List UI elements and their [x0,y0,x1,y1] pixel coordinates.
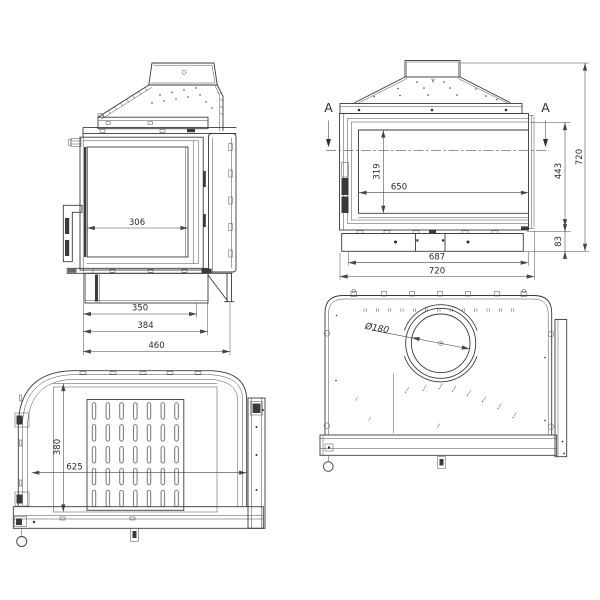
dim-label-83: 83 [554,236,564,247]
front-dim-83: 83 [554,225,565,258]
dim-label-384: 384 [137,321,153,331]
front-dim-720-right: 720 [575,63,585,251]
side-dim-306: 306 [87,218,188,228]
side-hood [98,85,223,131]
front-dim-319: 319 [373,130,384,213]
rear-view: Ø180 [320,289,567,471]
dim-label-460: 460 [148,341,164,351]
dim-label-306: 306 [129,218,145,228]
front-dim-650: 650 [359,183,529,193]
side-base [67,268,234,303]
dim-label-687: 687 [429,253,445,263]
front-dim-443: 443 [554,123,565,227]
dim-label-319: 319 [373,163,383,179]
front-dim-720-bottom: 720 [340,267,534,277]
dim-label-350: 350 [132,304,148,314]
plan-view: 380 625 [13,371,265,547]
rear-base-band [320,435,557,468]
dim-label-443: 443 [554,163,564,179]
plan-dim-380: 380 [53,384,63,513]
side-dim-384: 384 [83,321,207,332]
rear-side-bolts [324,331,554,430]
front-plinth [342,234,524,252]
front-flue-collar [405,61,460,84]
side-dim-350: 350 [83,304,196,315]
rear-door-knob [324,455,334,471]
plan-door-knob [17,528,27,546]
section-label-a-left: A [324,100,333,115]
side-hinge-pin [69,138,82,146]
front-dim-687: 687 [348,253,528,263]
side-rear-panel [209,134,237,273]
side-dim-460: 460 [83,341,230,352]
dim-label-720-height: 720 [575,149,585,165]
dim-label-380: 380 [53,439,63,455]
dim-label-720-width: 720 [429,267,445,277]
side-body [80,137,206,270]
plan-hinge-lugs [15,413,29,506]
dim-label-diameter-180: Ø180 [363,321,390,336]
flue-dim-diameter: Ø180 [363,321,469,349]
side-view: 306 350 384 460 [63,63,236,355]
side-top-plate [98,114,208,129]
section-marker-a-left: A [324,100,333,147]
section-label-a-right: A [541,100,550,115]
plan-side-panel [248,398,265,528]
side-handle-bracket [63,205,82,261]
rear-outline [324,289,554,435]
technical-drawing-page: 306 350 384 460 [0,0,600,600]
side-hood-rivets [151,87,212,108]
side-flue-collar [149,63,217,85]
fireplace-technical-drawing: 306 350 384 460 [0,0,600,600]
front-body [340,114,535,231]
plan-grate [87,400,184,511]
section-marker-a-right: A [541,100,550,147]
dim-label-650: 650 [391,183,407,193]
dim-label-625: 625 [66,463,82,473]
front-mounting-flange [340,104,522,114]
front-view: A A 319 [324,61,589,280]
